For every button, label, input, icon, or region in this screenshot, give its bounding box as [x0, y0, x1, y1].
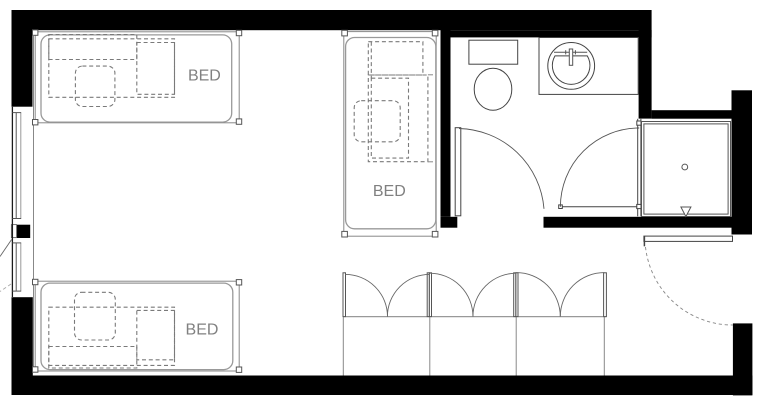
svg-text:BED: BED — [373, 183, 406, 200]
svg-text:BED: BED — [186, 322, 219, 339]
svg-text:BED: BED — [188, 68, 221, 85]
